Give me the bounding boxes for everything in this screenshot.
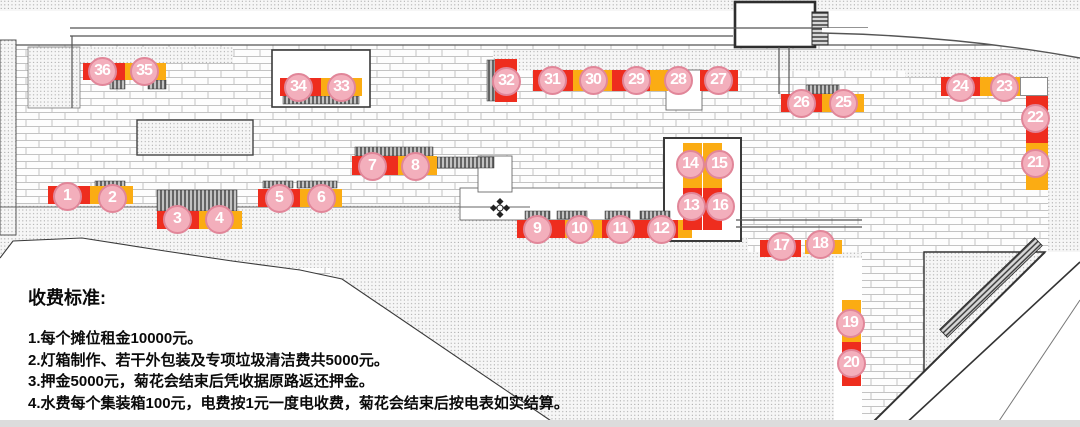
kiosk-near-stall-28: [666, 70, 702, 110]
band-above-stalls-35-36: [80, 47, 233, 63]
top-dotted-strip: [0, 0, 1080, 11]
building-top-right: [735, 2, 815, 47]
left-edge-strip: [0, 40, 16, 235]
stall-map-screenshot: 1234567891011121314151617181920212223242…: [0, 0, 1080, 427]
fee-item-3: 3.押金5000元，菊花会结束后凭收据原路返还押金。: [28, 371, 748, 393]
fee-notice-panel: 收费标准: 1.每个摊位租金10000元。 2.灯箱制作、若干外包装及专项垃圾清…: [28, 284, 748, 414]
bottom-strip: [0, 420, 1080, 427]
fee-notice-heading: 收费标准:: [28, 284, 748, 310]
band-above-stalls-27-31: [493, 50, 913, 71]
right-edge-strip: [1048, 55, 1080, 252]
building-stalls-13-16: [664, 138, 741, 241]
band-top-right: [905, 50, 1048, 77]
fee-item-4: 4.水费每个集装箱100元，电费按1元一度电收费，菊花会结束后按电表如实结算。: [28, 393, 748, 415]
fee-item-2: 2.灯箱制作、若干外包装及专项垃圾清洁费共5000元。: [28, 350, 748, 372]
stall-19-20-pad: [834, 258, 862, 422]
planter-center: [137, 120, 253, 155]
fee-item-1: 1.每个摊位租金10000元。: [28, 328, 748, 350]
